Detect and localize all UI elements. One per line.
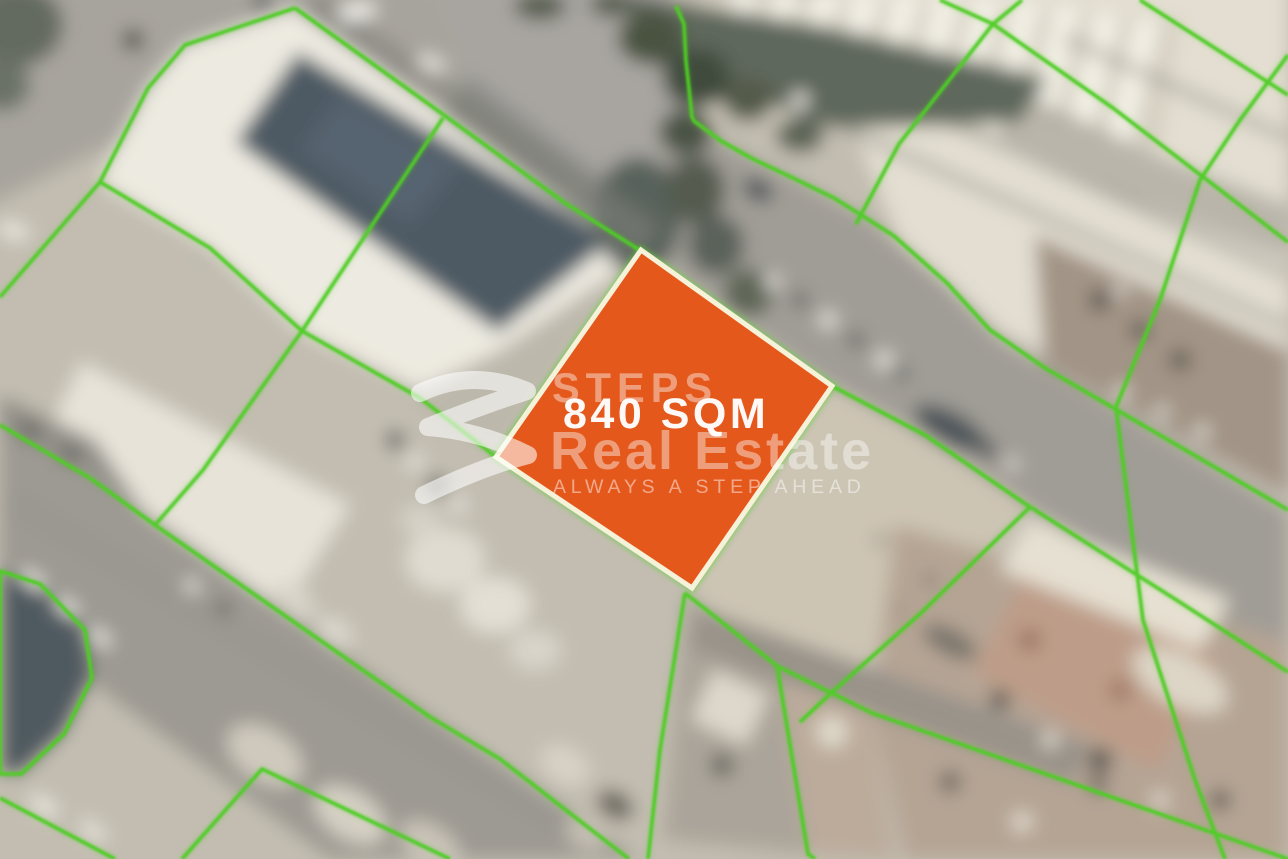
svg-text:840 SQM: 840 SQM xyxy=(563,390,769,438)
svg-text:ALWAYS A STEP AHEAD: ALWAYS A STEP AHEAD xyxy=(553,476,866,498)
